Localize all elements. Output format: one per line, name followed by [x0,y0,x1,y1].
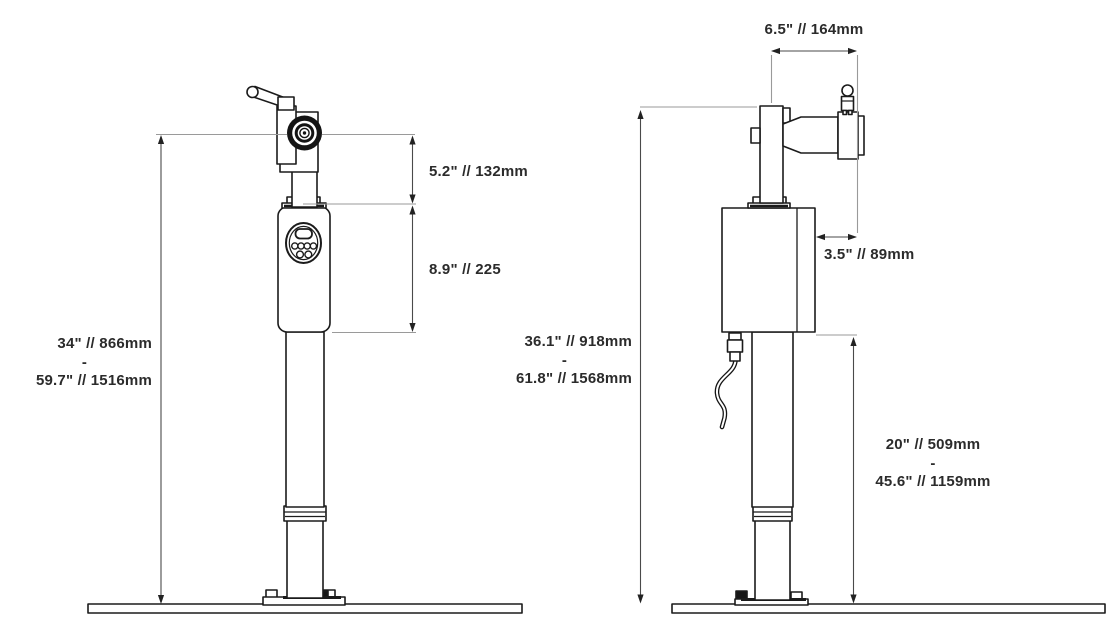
front-body-height-label: 8.9" // 225 [429,261,501,280]
drawing-svg [0,0,1120,638]
dim-separator: - [852,455,1014,474]
front-upper-pole [286,332,324,507]
side-arm-offset-label: 3.5" // 89mm [824,246,914,265]
dim-value-max: 61.8" // 1568mm [497,370,632,389]
front-lever-mount [278,97,294,110]
side-post-clamp [751,128,760,143]
front-lower-pole [287,520,323,598]
dim-value-min: 36.1" // 918mm [497,333,632,352]
side-cable-connector [729,333,741,340]
front-control-panel [286,223,321,263]
front-lever-ball [247,87,258,98]
side-pole-collar [753,506,792,521]
technical-drawing-canvas: 34" // 866mm - 59.7" // 1516mm 5.2" // 1… [0,0,1120,638]
side-view-drawing [672,85,1105,613]
dim-value-min: 34" // 866mm [17,335,152,354]
front-lever-handle [247,87,294,111]
side-arm-end-block [838,112,858,159]
side-top-knob [842,85,854,115]
side-overall-height-label: 36.1" // 918mm - 61.8" // 1568mm [497,333,632,389]
side-arm-reach-label: 6.5" // 164mm [744,21,884,40]
dim-value-min: 20" // 509mm [852,436,1014,455]
front-pole-collar [284,506,326,521]
side-arm [783,117,838,153]
side-power-cable [717,333,743,427]
dim-value-max: 45.6" // 1159mm [852,473,1014,492]
side-head-post [760,106,783,203]
side-column-height-label: 20" // 509mm - 45.6" // 1159mm [852,436,1014,492]
dim-separator: - [497,352,632,371]
front-adjustment-knob [287,116,322,151]
front-head-post [292,170,317,207]
front-head-height-label: 5.2" // 132mm [429,163,528,182]
side-body [722,208,815,332]
front-display-button [296,229,313,239]
front-overall-height-label: 34" // 866mm - 59.7" // 1516mm [17,335,152,391]
side-arm-end-plate [858,116,864,155]
dim-separator: - [17,354,152,373]
side-lower-pole [755,520,790,600]
dim-value-max: 59.7" // 1516mm [17,372,152,391]
side-upper-pole [752,332,793,507]
